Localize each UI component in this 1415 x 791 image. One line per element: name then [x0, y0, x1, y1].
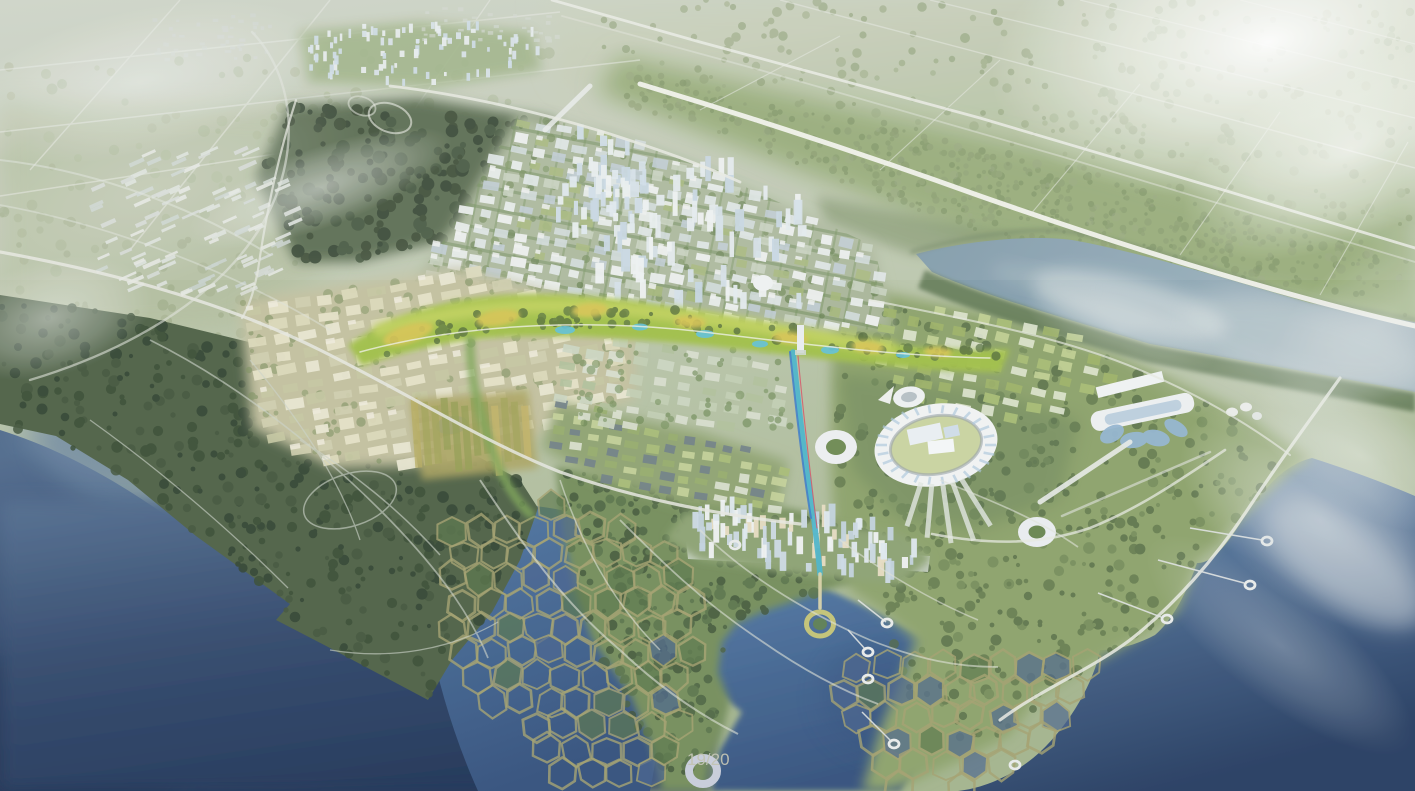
- svg-text:19/20: 19/20: [687, 750, 730, 769]
